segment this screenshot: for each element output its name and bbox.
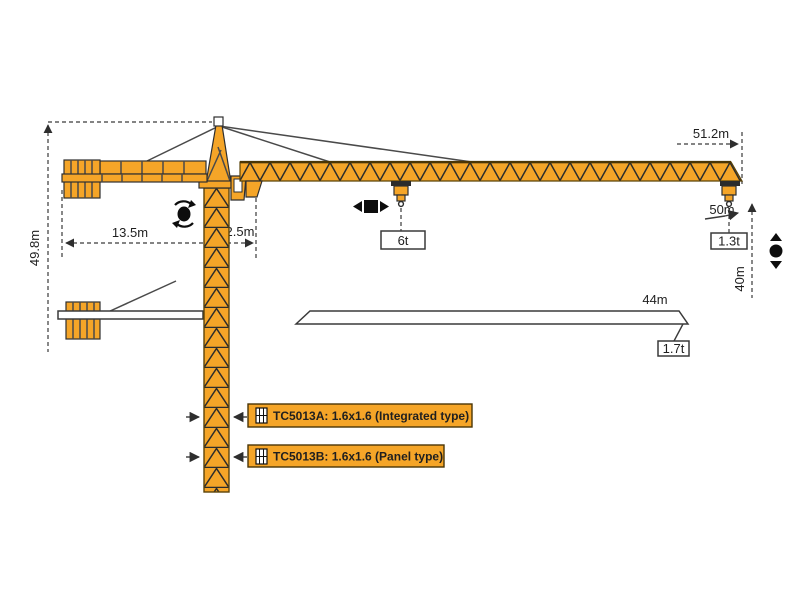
variant-label-a: TC5013A: 1.6x1.6 (Integrated type) <box>248 404 472 427</box>
mast-section-icon <box>256 449 267 464</box>
hook-height-label: 40m <box>732 266 747 291</box>
variant-a-text: TC5013A: 1.6x1.6 (Integrated type) <box>273 409 469 423</box>
apex-pin <box>214 117 223 126</box>
dimension-rope-length: 50m <box>705 202 738 219</box>
tower-head <box>147 117 472 200</box>
counter-jib-panels <box>100 161 206 174</box>
slew-rotation-icon <box>172 200 196 228</box>
tower-mast <box>204 188 229 492</box>
mast-section-icon <box>256 408 267 423</box>
total-height-label: 49.8m <box>27 230 42 266</box>
counter-jib <box>62 160 207 198</box>
counter-jib-beam-ground <box>58 311 203 319</box>
dimension-hook-height: 40m <box>732 204 752 298</box>
counterweight-block-ground <box>66 302 100 339</box>
load-span-diagram: 44m 1.7t <box>296 292 689 356</box>
crane-dimension-diagram: 49.8m 13.5m 2.5m 51.2m 44m 1.7t <box>0 0 800 600</box>
counter-jib-walkway <box>62 174 207 182</box>
variant-b-text: TC5013B: 1.6x1.6 (Panel type) <box>273 450 443 464</box>
counter-jib-label: 13.5m <box>112 225 148 240</box>
load-6t: 6t <box>398 233 409 248</box>
rear-offset-label: 2.5m <box>226 224 255 239</box>
hook-icon <box>399 202 404 207</box>
jib <box>240 162 742 197</box>
counterweight-assembly-ground <box>58 281 203 339</box>
hoist-updown-icon <box>770 233 783 269</box>
load-1-7t: 1.7t <box>663 341 685 356</box>
jib-foot <box>246 181 262 197</box>
trolley-travel-icon <box>353 200 389 213</box>
crane-diagram-svg: 49.8m 13.5m 2.5m 51.2m 44m 1.7t <box>0 0 800 600</box>
span-trapezoid <box>296 311 688 324</box>
jib-radius-label: 51.2m <box>693 126 729 141</box>
mid-span-label: 44m <box>642 292 667 307</box>
load-1-3t: 1.3t <box>718 234 740 249</box>
variant-label-b: TC5013B: 1.6x1.6 (Panel type) <box>248 445 444 467</box>
mid-trolley: 6t <box>381 181 425 249</box>
